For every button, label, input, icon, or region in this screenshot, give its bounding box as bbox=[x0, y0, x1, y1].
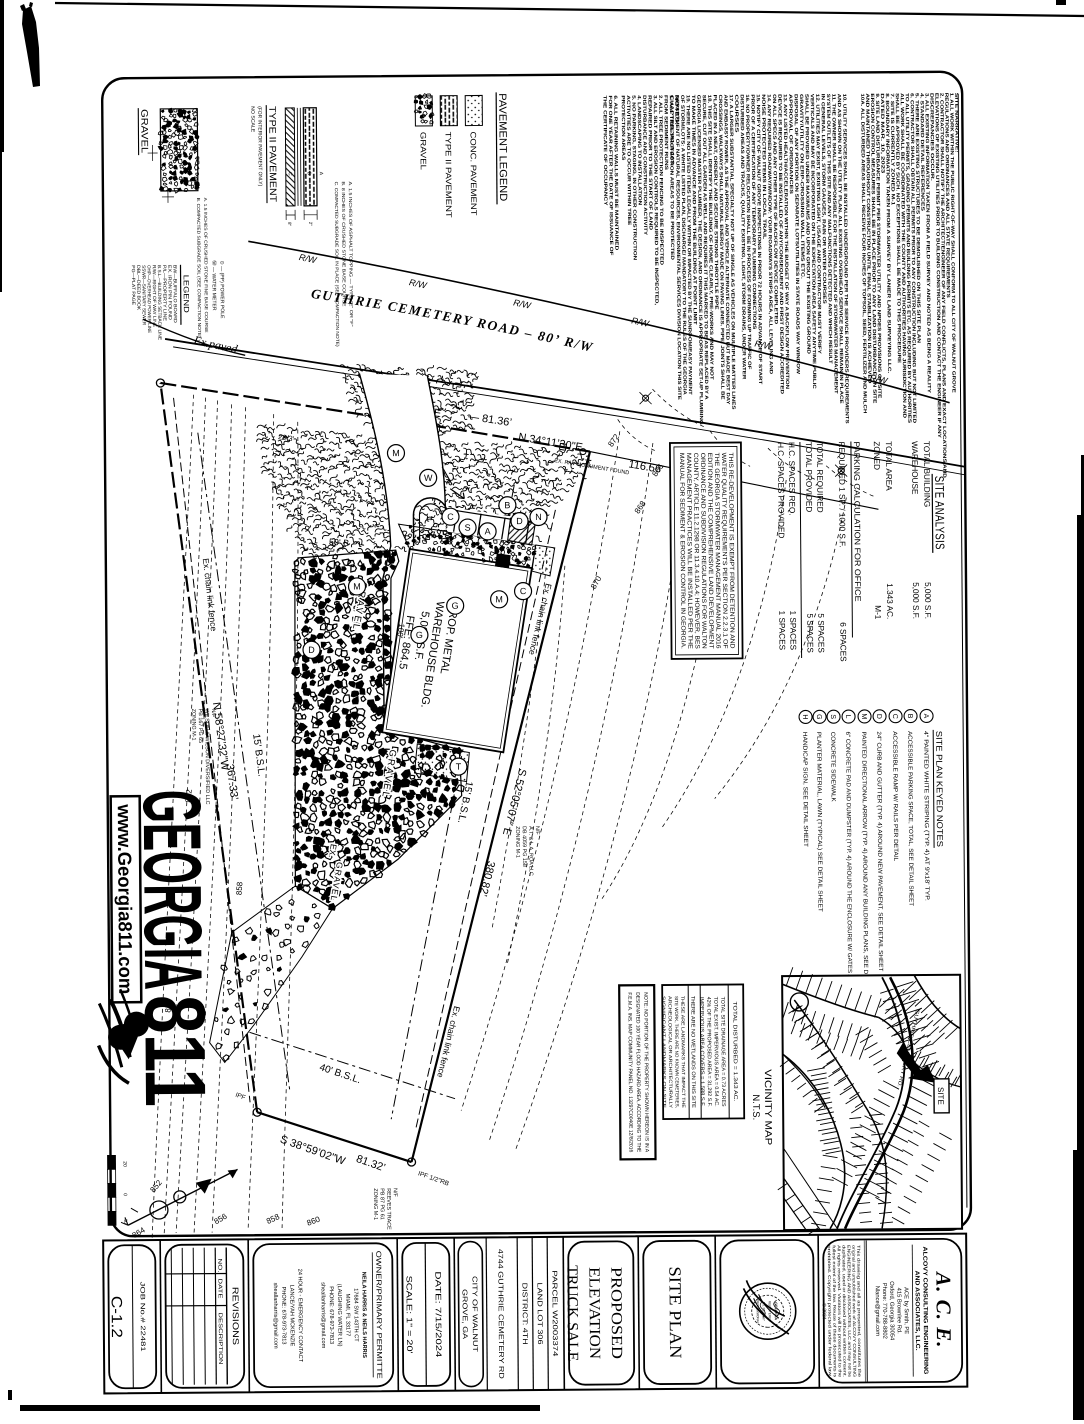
svg-text:TYPE II PAVEMENT: TYPE II PAVEMENT bbox=[266, 106, 278, 202]
svg-text:prohibited. Copyright protecte: prohibited. Copyright protected under fe… bbox=[827, 1245, 833, 1377]
svg-text:24" CURB AND GUTTER (TYP. 4) A: 24" CURB AND GUTTER (TYP. 4) AROUND NEW … bbox=[875, 731, 883, 971]
svg-text:MIAMI, FL 33177: MIAMI, FL 33177 bbox=[344, 1294, 350, 1337]
svg-text:DATE: DATE bbox=[216, 1279, 222, 1300]
svg-text:N.T.S.: N.T.S. bbox=[750, 1094, 761, 1120]
svg-text:EX. IRON PIN FOUND: EX. IRON PIN FOUND bbox=[167, 265, 172, 321]
svg-text:17684 SW 143TH CT: 17684 SW 143TH CT bbox=[352, 1288, 358, 1342]
svg-text:APPROVAL OF ORDINANCES: APPROVAL OF ORDINANCES bbox=[788, 94, 794, 194]
svg-text:REQUIRED 1 SP. / 1000 S.F.: REQUIRED 1 SP. / 1000 S.F. bbox=[837, 442, 847, 548]
svg-text:JOB No.# 22481: JOB No.# 22481 bbox=[138, 1282, 146, 1353]
svg-text:NEILA HARRIS & NEILS HARRIS: NEILA HARRIS & NEILS HARRIS bbox=[360, 1272, 367, 1359]
svg-text:D: D bbox=[875, 714, 882, 719]
svg-text:ACCESSIBLE PARKING SPACE, TOTA: ACCESSIBLE PARKING SPACE, TOTAL, SEE DET… bbox=[906, 731, 913, 906]
svg-text:HANDICAP SIGN, SEE DETAIL SHEE: HANDICAP SIGN, SEE DETAIL SHEET bbox=[801, 732, 808, 847]
svg-text:SITE NARRATIVE:: SITE NARRATIVE: bbox=[954, 93, 959, 154]
svg-text:N/F: N/F bbox=[534, 826, 540, 835]
svg-text:AND ASSOCIATES, LLC.: AND ASSOCIATES, LLC. bbox=[913, 1271, 920, 1351]
svg-text:B.S.L.—BUILDING SETBACK LINE: B.S.L.—BUILDING SETBACK LINE bbox=[157, 265, 163, 340]
svg-text:F.E.M.A. INS. MAP COMMUNITY PA: F.E.M.A. INS. MAP COMMUNITY PANEL NO. 13… bbox=[626, 992, 633, 1152]
svg-text:4. STANDARD DETAIL REFERENCE: 4. STANDARD DETAIL REFERENCES bbox=[920, 93, 926, 211]
svg-text:www.Georgia811.com: www.Georgia811.com bbox=[113, 803, 135, 994]
svg-text:5 SPACES: 5 SPACES bbox=[816, 613, 825, 653]
svg-text:LANCE/YAH MCKENZIE: LANCE/YAH MCKENZIE bbox=[288, 1285, 294, 1347]
svg-text:VICINITY MAP: VICINITY MAP bbox=[762, 1069, 774, 1145]
svg-text:A: A bbox=[922, 714, 929, 719]
svg-text:NOTE: NO PORTION OF THE PROPER: NOTE: NO PORTION OF THE PROPERTY SHOWN H… bbox=[642, 992, 649, 1153]
svg-text:PLANTER MATERIAL, LAWN (TYPICA: PLANTER MATERIAL, LAWN (TYPICAL) SEE DET… bbox=[815, 732, 822, 912]
svg-text:IMPERVIOUS AREA COVERS = 1.588: IMPERVIOUS AREA COVERS = 1.588 S.F. bbox=[698, 997, 705, 1107]
svg-text:ALCOVY CONSULTING ENGINEERING: ALCOVY CONSULTING ENGINEERING bbox=[921, 1246, 928, 1374]
svg-text:M-1: M-1 bbox=[873, 605, 882, 620]
svg-text:PROPOSED: PROPOSED bbox=[607, 1267, 625, 1359]
svg-text:4" PAINTED WHITE STRIPING (TYP: 4" PAINTED WHITE STRIPING (TYP. 4) AT 9'… bbox=[922, 731, 929, 901]
svg-text:A: A bbox=[318, 172, 324, 176]
svg-text:ZONING M-1: ZONING M-1 bbox=[190, 709, 196, 741]
svg-text:LAND LOT 306: LAND LOT 306 bbox=[535, 1282, 542, 1344]
svg-text:TOTAL BUILDING: TOTAL BUILDING bbox=[922, 441, 932, 507]
svg-text:SITE PLAN KEYED NOTES: SITE PLAN KEYED NOTES bbox=[934, 731, 945, 847]
svg-text:TOTAL EXIST. IMPERVIOUS AREA =: TOTAL EXIST. IMPERVIOUS AREA = 0.54 AC. bbox=[712, 997, 719, 1107]
svg-text:H.C. SPACES REQ.: H.C. SPACES REQ. bbox=[787, 442, 797, 516]
svg-text:GROVE, GA: GROVE, GA bbox=[461, 1289, 468, 1339]
svg-text:OWNER/PRIMARY PERMITTE: OWNER/PRIMARY PERMITTE bbox=[374, 1251, 384, 1379]
svg-text:CONC. PAVEMENT: CONC. PAVEMENT bbox=[468, 131, 478, 215]
svg-text:DISTRICT: 4TH: DISTRICT: 4TH bbox=[520, 1283, 527, 1345]
svg-text:THERE ARE NO WETLANDS ON THIS: THERE ARE NO WETLANDS ON THIS SITE bbox=[689, 996, 696, 1109]
svg-text:ACE by Smith, PE: ACE by Smith, PE bbox=[903, 1287, 909, 1334]
svg-text:4744 GUTHRIE CEMETERY RD: 4744 GUTHRIE CEMETERY RD bbox=[496, 1249, 504, 1379]
svg-text:(LAUGHING WATER LN): (LAUGHING WATER LN) bbox=[336, 1284, 342, 1347]
svg-text:SITE WORK, THERE ARE NO KNOWN: SITE WORK, THERE ARE NO KNOWN CEMETERIES… bbox=[674, 996, 680, 1108]
svg-text:THE CERTIFICATE OF OCCUPANCY: THE CERTIFICATE OF OCCUPANCY bbox=[602, 95, 608, 206]
svg-text:WAREHOUSE: WAREHOUSE bbox=[910, 441, 919, 495]
svg-text:Phone: 770-788-8802: Phone: 770-788-8802 bbox=[881, 1283, 887, 1339]
svg-text:ZONED: ZONED bbox=[872, 441, 881, 470]
svg-text:⊙ — (PP) POWER POLE: ⊙ — (PP) POWER POLE bbox=[218, 260, 224, 319]
svg-text:H.C. SPACES PROVIDED: H.C. SPACES PROVIDED bbox=[776, 442, 786, 538]
svg-text:ELEVATION: ELEVATION bbox=[585, 1267, 603, 1359]
svg-text:BW—BUFFALO BOARD: BW—BUFFALO BOARD bbox=[172, 265, 177, 324]
svg-text:PAVEMENT LEGEND: PAVEMENT LEGEND bbox=[496, 93, 509, 202]
svg-text:SITE ANALYSIS: SITE ANALYSIS bbox=[932, 476, 947, 550]
svg-text:TRUCK SALE: TRUCK SALE bbox=[563, 1265, 581, 1361]
svg-text:CITY OF WALNUT: CITY OF WALNUT bbox=[470, 1276, 478, 1353]
svg-text:TYPE II PAVEMENT: TYPE II PAVEMENT bbox=[443, 132, 453, 218]
svg-text:PARCEL W2003374: PARCEL W2003374 bbox=[550, 1270, 558, 1356]
svg-text:N/F: N/F bbox=[210, 709, 216, 718]
svg-text:H: H bbox=[801, 714, 808, 719]
svg-text:8": 8" bbox=[287, 222, 292, 227]
svg-text:(FOR INTERIOR PAVEMENT ONLY): (FOR INTERIOR PAVEMENT ONLY) bbox=[256, 106, 263, 186]
svg-text:REVISIONS: REVISIONS bbox=[231, 1287, 241, 1345]
svg-text:DATE: 7/15/2024: DATE: 7/15/2024 bbox=[433, 1271, 443, 1358]
svg-text:B: B bbox=[906, 714, 913, 719]
svg-text:5,000 S.F.: 5,000 S.F. bbox=[923, 582, 932, 619]
svg-text:sheallanharris@gmail.com: sheallanharris@gmail.com bbox=[272, 1283, 279, 1349]
svg-text:DATED MAR. 10, 2023: DATED MAR. 10, 2023 bbox=[880, 93, 886, 174]
svg-text:M: M bbox=[860, 714, 867, 720]
svg-text:24 HOUR - EMERGENCY CONTACT: 24 HOUR - EMERGENCY CONTACT bbox=[296, 1269, 303, 1363]
svg-text:THESE ARE LANDMARKS THAT IMPAC: THESE ARE LANDMARKS THAT IMPACT THE bbox=[680, 996, 686, 1108]
svg-text:sheallanharris@gmail.com: sheallanharris@gmail.com bbox=[319, 1282, 326, 1348]
svg-text:GRAVEL: GRAVEL bbox=[138, 109, 149, 153]
svg-text:Nlance@gmail.com: Nlance@gmail.com bbox=[874, 1286, 880, 1337]
svg-text:ACCESSIBLE RAMP W/ RAILS PER D: ACCESSIBLE RAMP W/ RAILS PER DETAIL bbox=[891, 731, 898, 862]
svg-text:OHP—OVERHEAD POWER LINE: OHP—OVERHEAD POWER LINE bbox=[146, 265, 152, 333]
svg-text:ZONING M-1: ZONING M-1 bbox=[372, 1188, 378, 1220]
svg-text:R/W—RIGHT OF WAY LINE: R/W—RIGHT OF WAY LINE bbox=[152, 265, 157, 327]
svg-text:A. C. E.: A. C. E. bbox=[931, 1270, 956, 1348]
svg-text:COURSES: COURSES bbox=[734, 94, 739, 132]
svg-text:L: L bbox=[844, 715, 851, 719]
svg-text:SITE: SITE bbox=[936, 1087, 945, 1105]
svg-text:TOTAL AREA: TOTAL AREA bbox=[884, 441, 893, 491]
svg-text:NOTES:: NOTES: bbox=[674, 95, 679, 126]
svg-text:REPAIRED PRIOR TO THE START OF: REPAIRED PRIOR TO THE START OF LAND bbox=[647, 95, 653, 231]
svg-text:Ⓦ — WATER METER: Ⓦ — WATER METER bbox=[210, 261, 217, 311]
svg-text:DB 4059 PG 158: DB 4059 PG 158 bbox=[521, 826, 527, 867]
svg-text:Oxford, Georgia 30054: Oxford, Georgia 30054 bbox=[888, 1281, 894, 1341]
svg-text:DBL—DEED BOOK: DBL—DEED BOOK bbox=[136, 265, 141, 311]
svg-text:TOTAL REQUIRED: TOTAL REQUIRED bbox=[815, 442, 825, 513]
svg-text:A. 1.5 INCHES OF ASPHALT TOPP: A. 1.5 INCHES OF ASPHALT TOPPING — TYPE … bbox=[348, 181, 354, 327]
svg-text:TOTAL DISTURBED = 1.343 AC.: TOTAL DISTURBED = 1.343 AC. bbox=[731, 1001, 738, 1101]
svg-text:PB 167 PG 65: PB 167 PG 65 bbox=[197, 709, 203, 744]
svg-text:PROTECTION AREAS: PROTECTION AREAS bbox=[621, 95, 627, 160]
svg-text:NO.: NO. bbox=[216, 1259, 222, 1274]
svg-text:C: C bbox=[891, 714, 898, 719]
svg-text:REEVES TRACE: REEVES TRACE bbox=[385, 1188, 391, 1230]
svg-text:B. COMPACTED SUBGRADE SOIL (S: B. COMPACTED SUBGRADE SOIL (SEE COMPACTI… bbox=[196, 198, 202, 339]
svg-text:FROM SEDIMENT RUNS: FROM SEDIMENT RUNS bbox=[663, 95, 669, 170]
svg-text:A. 1.5 INCHES OF CRUSHED STON: A. 1.5 INCHES OF CRUSHED STONE FINE BASE… bbox=[203, 198, 209, 333]
svg-text:4. LANDSCAPING TO INSTALLATI: 4. LANDSCAPING TO INSTALLATION bbox=[637, 95, 643, 206]
svg-text:6. ALL RETAINING WALLS MUST: 6. ALL RETAINING WALLS MUST BE MAINTAINE… bbox=[613, 95, 619, 251]
svg-text:PHONE: 678-973-7813: PHONE: 678-973-7813 bbox=[280, 1287, 286, 1345]
svg-text:SIGNIFICANT LANDMARKS ON-SITE: SIGNIFICANT LANDMARKS ON-SITE bbox=[661, 996, 667, 1108]
svg-text:1 SPACES: 1 SPACES bbox=[788, 611, 797, 651]
svg-text:1.343 AC.: 1.343 AC. bbox=[885, 583, 894, 619]
svg-text:PG—PLAT PAGE: PG—PLAT PAGE bbox=[131, 265, 136, 305]
svg-text:TOTAL SITE DRAINAGE AREA = 0.7: TOTAL SITE DRAINAGE AREA = 0.73 ACRES bbox=[719, 997, 726, 1108]
svg-text:GRAVEL: GRAVEL bbox=[418, 132, 427, 171]
svg-text:LEGEND: LEGEND bbox=[182, 275, 191, 314]
svg-text:DISCREPANCIES OCCUR.: DISCREPANCIES OCCUR. bbox=[929, 93, 935, 181]
svg-text:PHONE: 678-973-7813: PHONE: 678-973-7813 bbox=[328, 1286, 334, 1344]
svg-text:1 SPACES: 1 SPACES bbox=[777, 611, 786, 651]
svg-text:ARCHEOLOGICAL OR ARCHITECTURAL: ARCHEOLOGICAL OR ARCHITECTURALLY bbox=[667, 996, 673, 1108]
svg-text:N/F: N/F bbox=[392, 1188, 398, 1197]
svg-text:C-1.2: C-1.2 bbox=[108, 1296, 125, 1338]
svg-text:ACTIVITIES ARE TO OCCUR WITHIN: ACTIVITIES ARE TO OCCUR WITHIN TREE bbox=[626, 95, 632, 225]
svg-text:CONCRETE SIDEWALK: CONCRETE SIDEWALK bbox=[829, 732, 836, 802]
svg-text:415 Brownlee Rd.: 415 Brownlee Rd. bbox=[895, 1288, 901, 1335]
svg-text:811: 811 bbox=[126, 995, 223, 1108]
svg-text:42% OF THE PROPOSED AREA = 31,: 42% OF THE PROPOSED AREA = 31,292 S.F. bbox=[705, 997, 712, 1107]
svg-text:5 SPACES: 5 SPACES bbox=[805, 613, 814, 653]
svg-text:6 SPACES: 6 SPACES bbox=[838, 622, 847, 662]
svg-text:SSWR—SANITARY SEWER: SSWR—SANITARY SEWER bbox=[141, 265, 146, 326]
svg-text:ZONING M-1: ZONING M-1 bbox=[514, 826, 520, 858]
svg-text:2": 2" bbox=[308, 222, 313, 227]
svg-text:DESIGNATED 100 YEAR FLOOD HAZA: DESIGNATED 100 YEAR FLOOD HAZARD AREA, A… bbox=[634, 992, 641, 1153]
svg-text:SCALE: 1" = 20': SCALE: 1" = 20' bbox=[404, 1276, 414, 1355]
svg-text:PARKING CALCULATION FOR OFFICE: PARKING CALCULATION FOR OFFICE bbox=[852, 441, 862, 602]
svg-text:A.T. & L.A. ROA LLC: A.T. & L.A. ROA LLC bbox=[527, 826, 533, 876]
svg-text:P/L—PROPERTY LINE: P/L—PROPERTY LINE bbox=[162, 265, 167, 321]
svg-text:DESCRIPTION: DESCRIPTION bbox=[217, 1313, 223, 1365]
svg-text:SITE PLAN: SITE PLAN bbox=[665, 1266, 685, 1358]
svg-text:C: C bbox=[287, 172, 293, 176]
svg-text:B. 8 INCHES OF CRUSHED STONE: B. 8 INCHES OF CRUSHED STONE BASE COURSE bbox=[341, 182, 347, 307]
svg-text:C. COMPACTED SUBGRADE SOIL IN: C. COMPACTED SUBGRADE SOIL IN PLACE (SEE… bbox=[334, 182, 340, 348]
svg-text:S: S bbox=[829, 714, 836, 719]
svg-text:TOTAL PROVIDED: TOTAL PROVIDED bbox=[804, 442, 814, 513]
svg-text:5,000 S.F.: 5,000 S.F. bbox=[911, 582, 920, 619]
svg-text:WILSON & WILSON DIVERSIFIED LL: WILSON & WILSON DIVERSIFIED LLC bbox=[203, 709, 210, 805]
svg-text:NO SCALE: NO SCALE bbox=[249, 106, 255, 133]
svg-text:G: G bbox=[815, 714, 822, 720]
svg-text:7. SITE IS CURRENTLY ZONED M: 7. SITE IS CURRENTLY ZONED M-1 bbox=[890, 93, 896, 206]
svg-text:PB 87 PG 61: PB 87 PG 61 bbox=[379, 1188, 385, 1220]
